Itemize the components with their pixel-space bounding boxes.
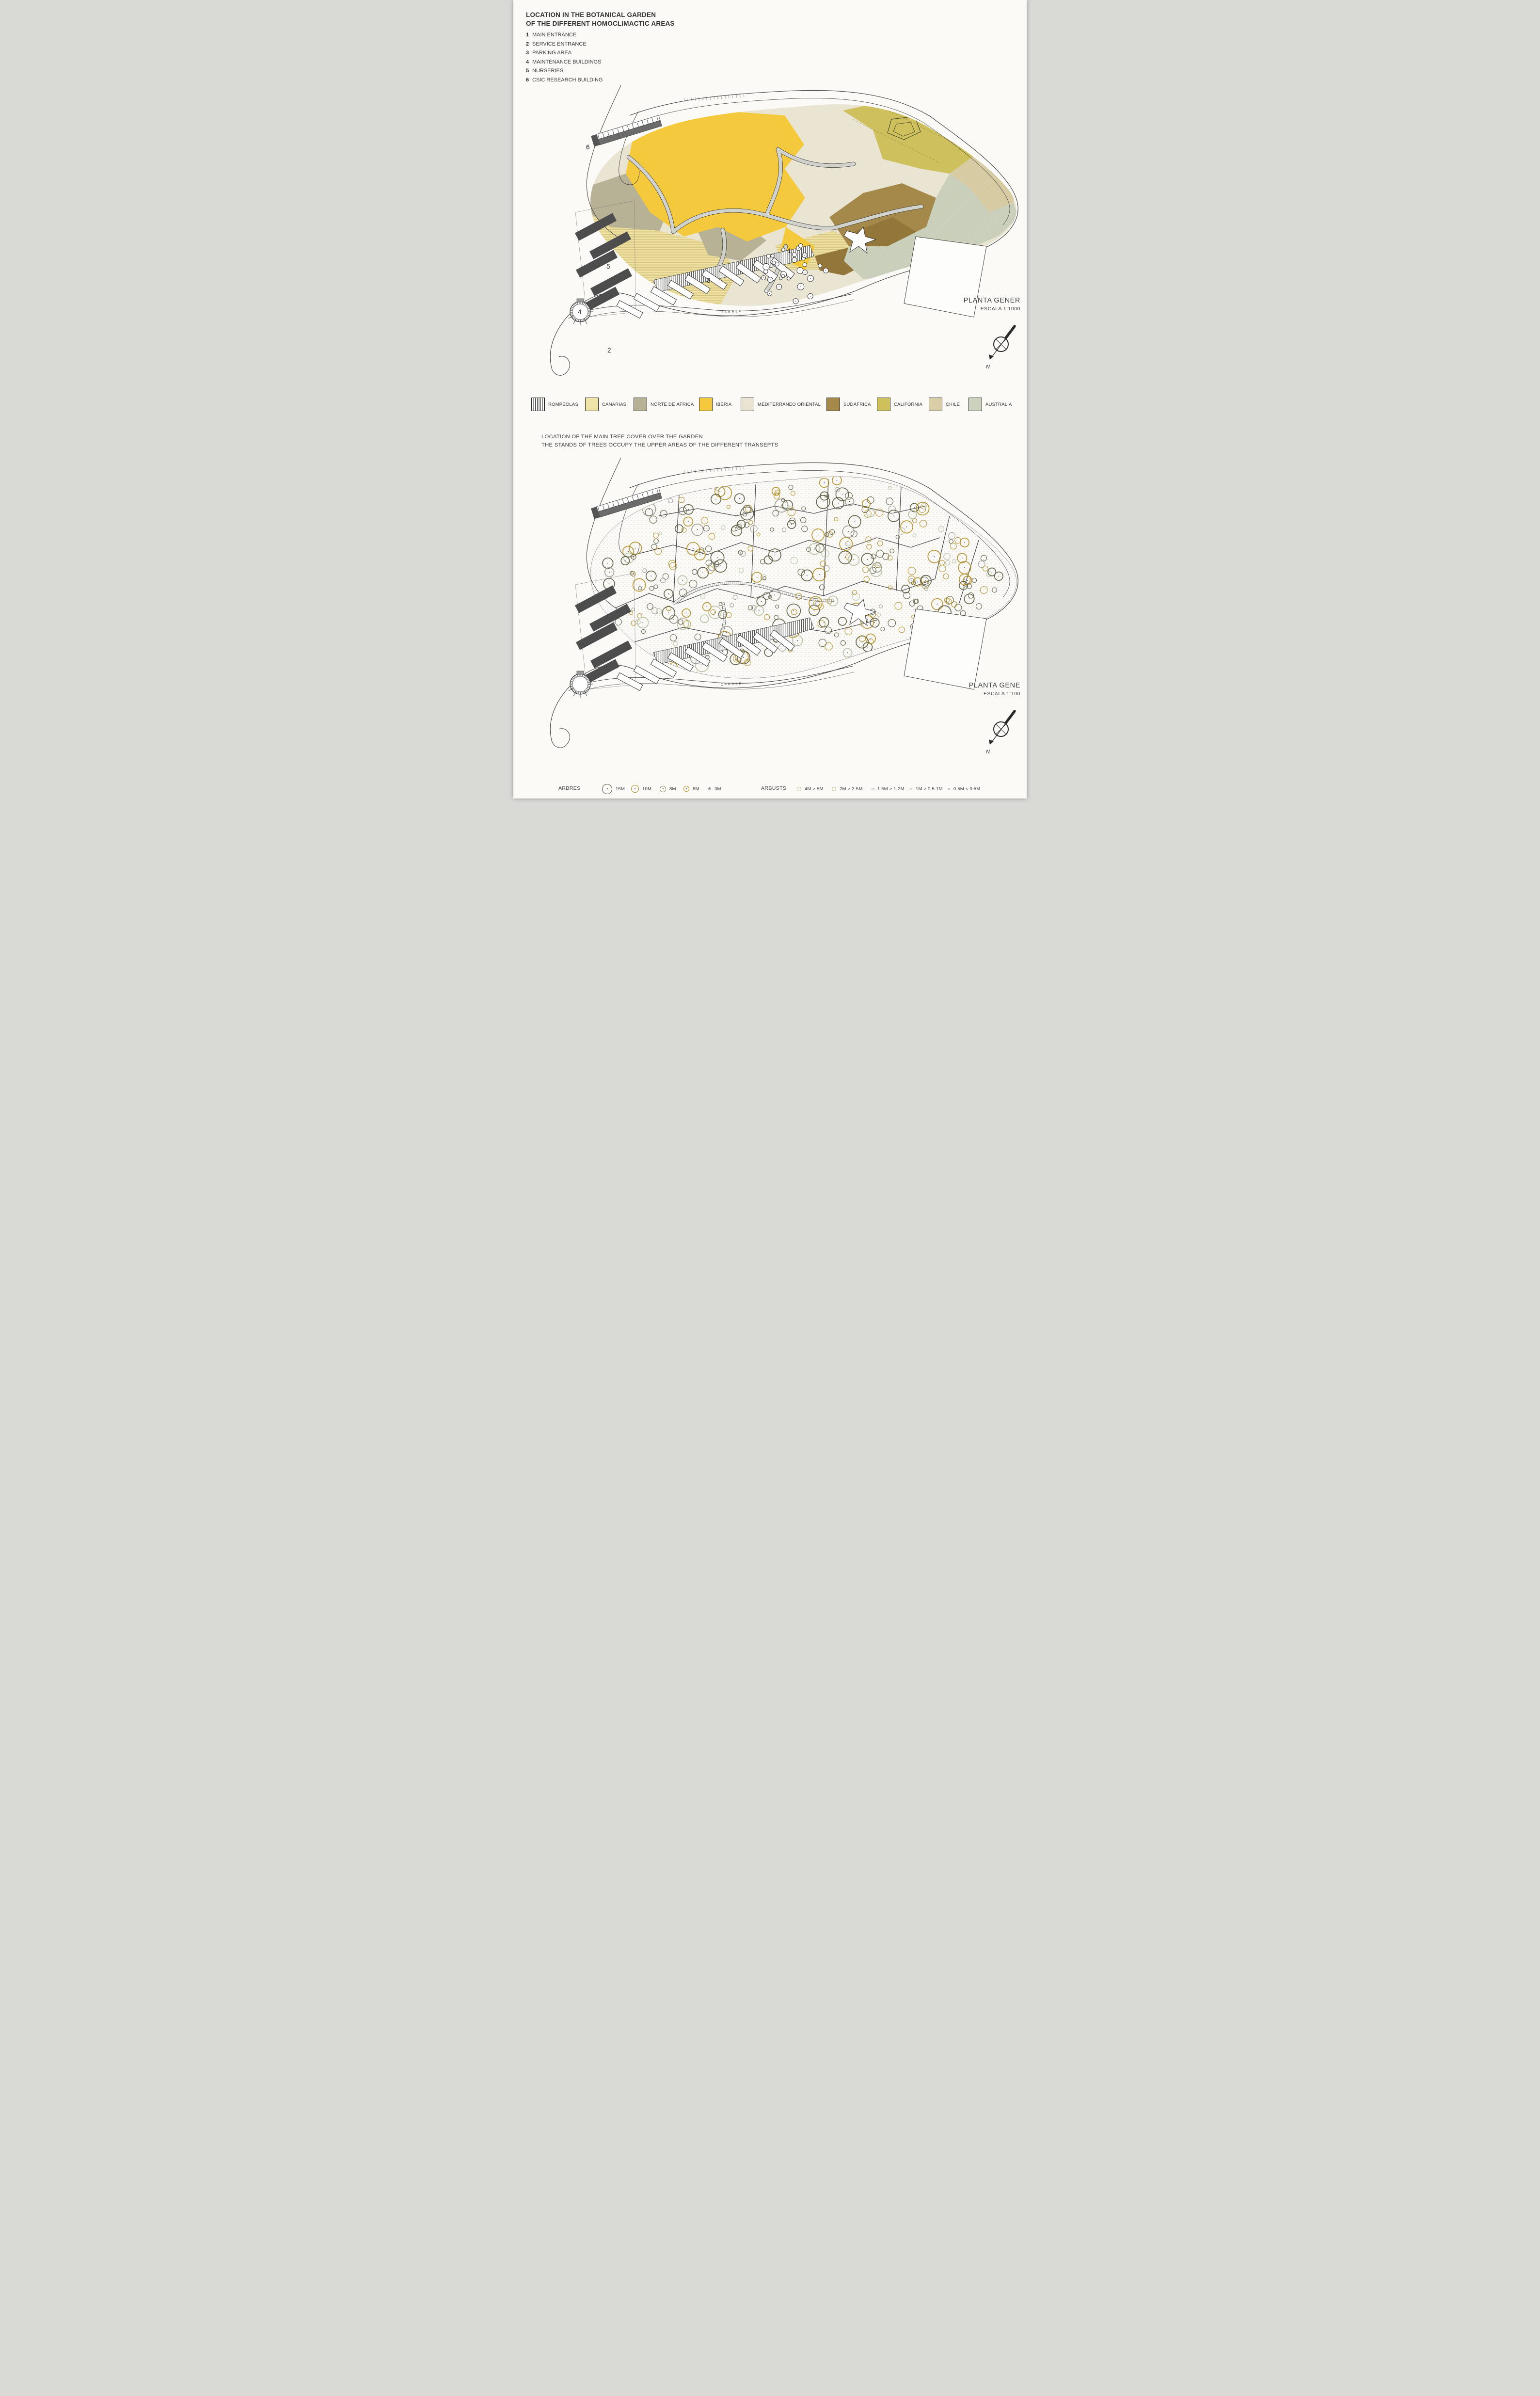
map-tree-cover — [513, 458, 1027, 760]
tree-size-15m: 15M — [602, 780, 625, 798]
tree-15m-icon — [602, 784, 612, 794]
rompeolas-swatch-icon — [531, 398, 545, 411]
shrub-4m-icon — [797, 787, 801, 791]
canarias-swatch-icon — [585, 398, 599, 411]
label-csic: 6 — [586, 144, 590, 151]
tree-3m-icon — [708, 787, 711, 790]
label-maintenance: 4 — [578, 308, 582, 316]
shrub-1-5m-icon — [872, 788, 874, 790]
svg-text:N: N — [986, 749, 990, 755]
map-homoclimatic-areas: 1 2 3 4 5 6 — [513, 85, 1027, 388]
legend-sudafrica: SUDÁFRICA — [826, 398, 871, 411]
legend-canarias: CANARIAS — [585, 398, 626, 411]
iberia-swatch-icon — [699, 398, 713, 411]
shrub-0-5m-icon — [948, 788, 950, 790]
arbusts-group-label: ARBUSTS — [761, 785, 786, 791]
tree-6m-icon — [683, 786, 689, 792]
tree-size-10m: 10M — [631, 780, 651, 798]
australia-swatch-icon — [968, 398, 982, 411]
legend-rompeolas: ROMPEOLAS — [531, 398, 578, 411]
key-item: 1MAIN ENTRANCE — [526, 32, 603, 41]
key-item: 6CSIC RESEARCH BUILDING — [526, 77, 603, 86]
label-parking-area: 3 — [707, 277, 711, 284]
svg-text:N: N — [986, 364, 990, 370]
plan1-caption: PLANTA GENER ESCALA 1:1000 — [964, 297, 1020, 312]
key-item: 4MAINTENANCE BUILDINGS — [526, 59, 603, 68]
legend-mediterraneo: MEDITERRÁNEO ORIENTAL — [741, 398, 821, 411]
label-nurseries: 5 — [606, 263, 610, 270]
page-title-line1: LOCATION IN THE BOTANICAL GARDEN — [526, 11, 675, 19]
shrub-1m-icon — [910, 788, 912, 790]
key-item: 3PARKING AREA — [526, 50, 603, 59]
sudafrica-swatch-icon — [826, 398, 840, 411]
mediterraneo-swatch-icon — [741, 398, 754, 411]
legend-iberia: IBERIA — [699, 398, 731, 411]
tree-size-8m: 8M — [660, 780, 676, 798]
shrub-2m-icon — [832, 787, 836, 791]
chile-swatch-icon — [929, 398, 942, 411]
california-swatch-icon — [877, 398, 890, 411]
legend-california: CALIFORNIA — [877, 398, 922, 411]
label-service-entrance: 2 — [607, 347, 611, 354]
shrub-size-1m: 1M > 0.5-1M — [910, 780, 943, 798]
section2-title: LOCATION OF THE MAIN TREE COVER OVER THE… — [541, 433, 778, 449]
shrub-size-1-5m: 1.5M > 1-2M — [872, 780, 905, 798]
map-key-list: 1MAIN ENTRANCE 2SERVICE ENTRANCE 3PARKIN… — [526, 32, 603, 86]
north-compass-1: N — [984, 322, 1018, 372]
arbres-group-label: ARBRES — [558, 785, 581, 791]
page-title: LOCATION IN THE BOTANICAL GARDEN OF THE … — [526, 11, 675, 28]
key-item: 2SERVICE ENTRANCE — [526, 41, 603, 50]
shrub-size-0-5m: 0.5M < 0.5M — [948, 780, 980, 798]
shrub-size-4m: 4M > 5M — [797, 780, 824, 798]
label-main-entrance: 1 — [788, 247, 792, 255]
north-compass-2: N — [984, 707, 1018, 757]
page-title-line2: OF THE DIFFERENT HOMOCLIMACTIC AREAS — [526, 19, 675, 28]
legend-norte-africa: NORTE DE ÁFRICA — [634, 398, 694, 411]
tree-8m-icon — [660, 786, 666, 792]
tree-size-6m: 6M — [683, 780, 699, 798]
norte-swatch-icon — [634, 398, 647, 411]
scanned-plan-page: CARRER — [513, 0, 1027, 799]
tree-size-3m: 3M — [708, 780, 721, 798]
plan2-caption: PLANTA GENE ESCALA 1:100 — [969, 682, 1020, 697]
tree-10m-icon — [631, 785, 639, 793]
legend-australia: AUSTRALIA — [968, 398, 1012, 411]
shrub-size-2m: 2M > 2-5M — [832, 780, 862, 798]
legend-chile: CHILE — [929, 398, 960, 411]
tree-size-legend: ARBRES 15M 10M 8M 6M 3M ARBUSTS 4M > 5M … — [513, 780, 1027, 798]
key-item: 5NURSERIES — [526, 68, 603, 77]
